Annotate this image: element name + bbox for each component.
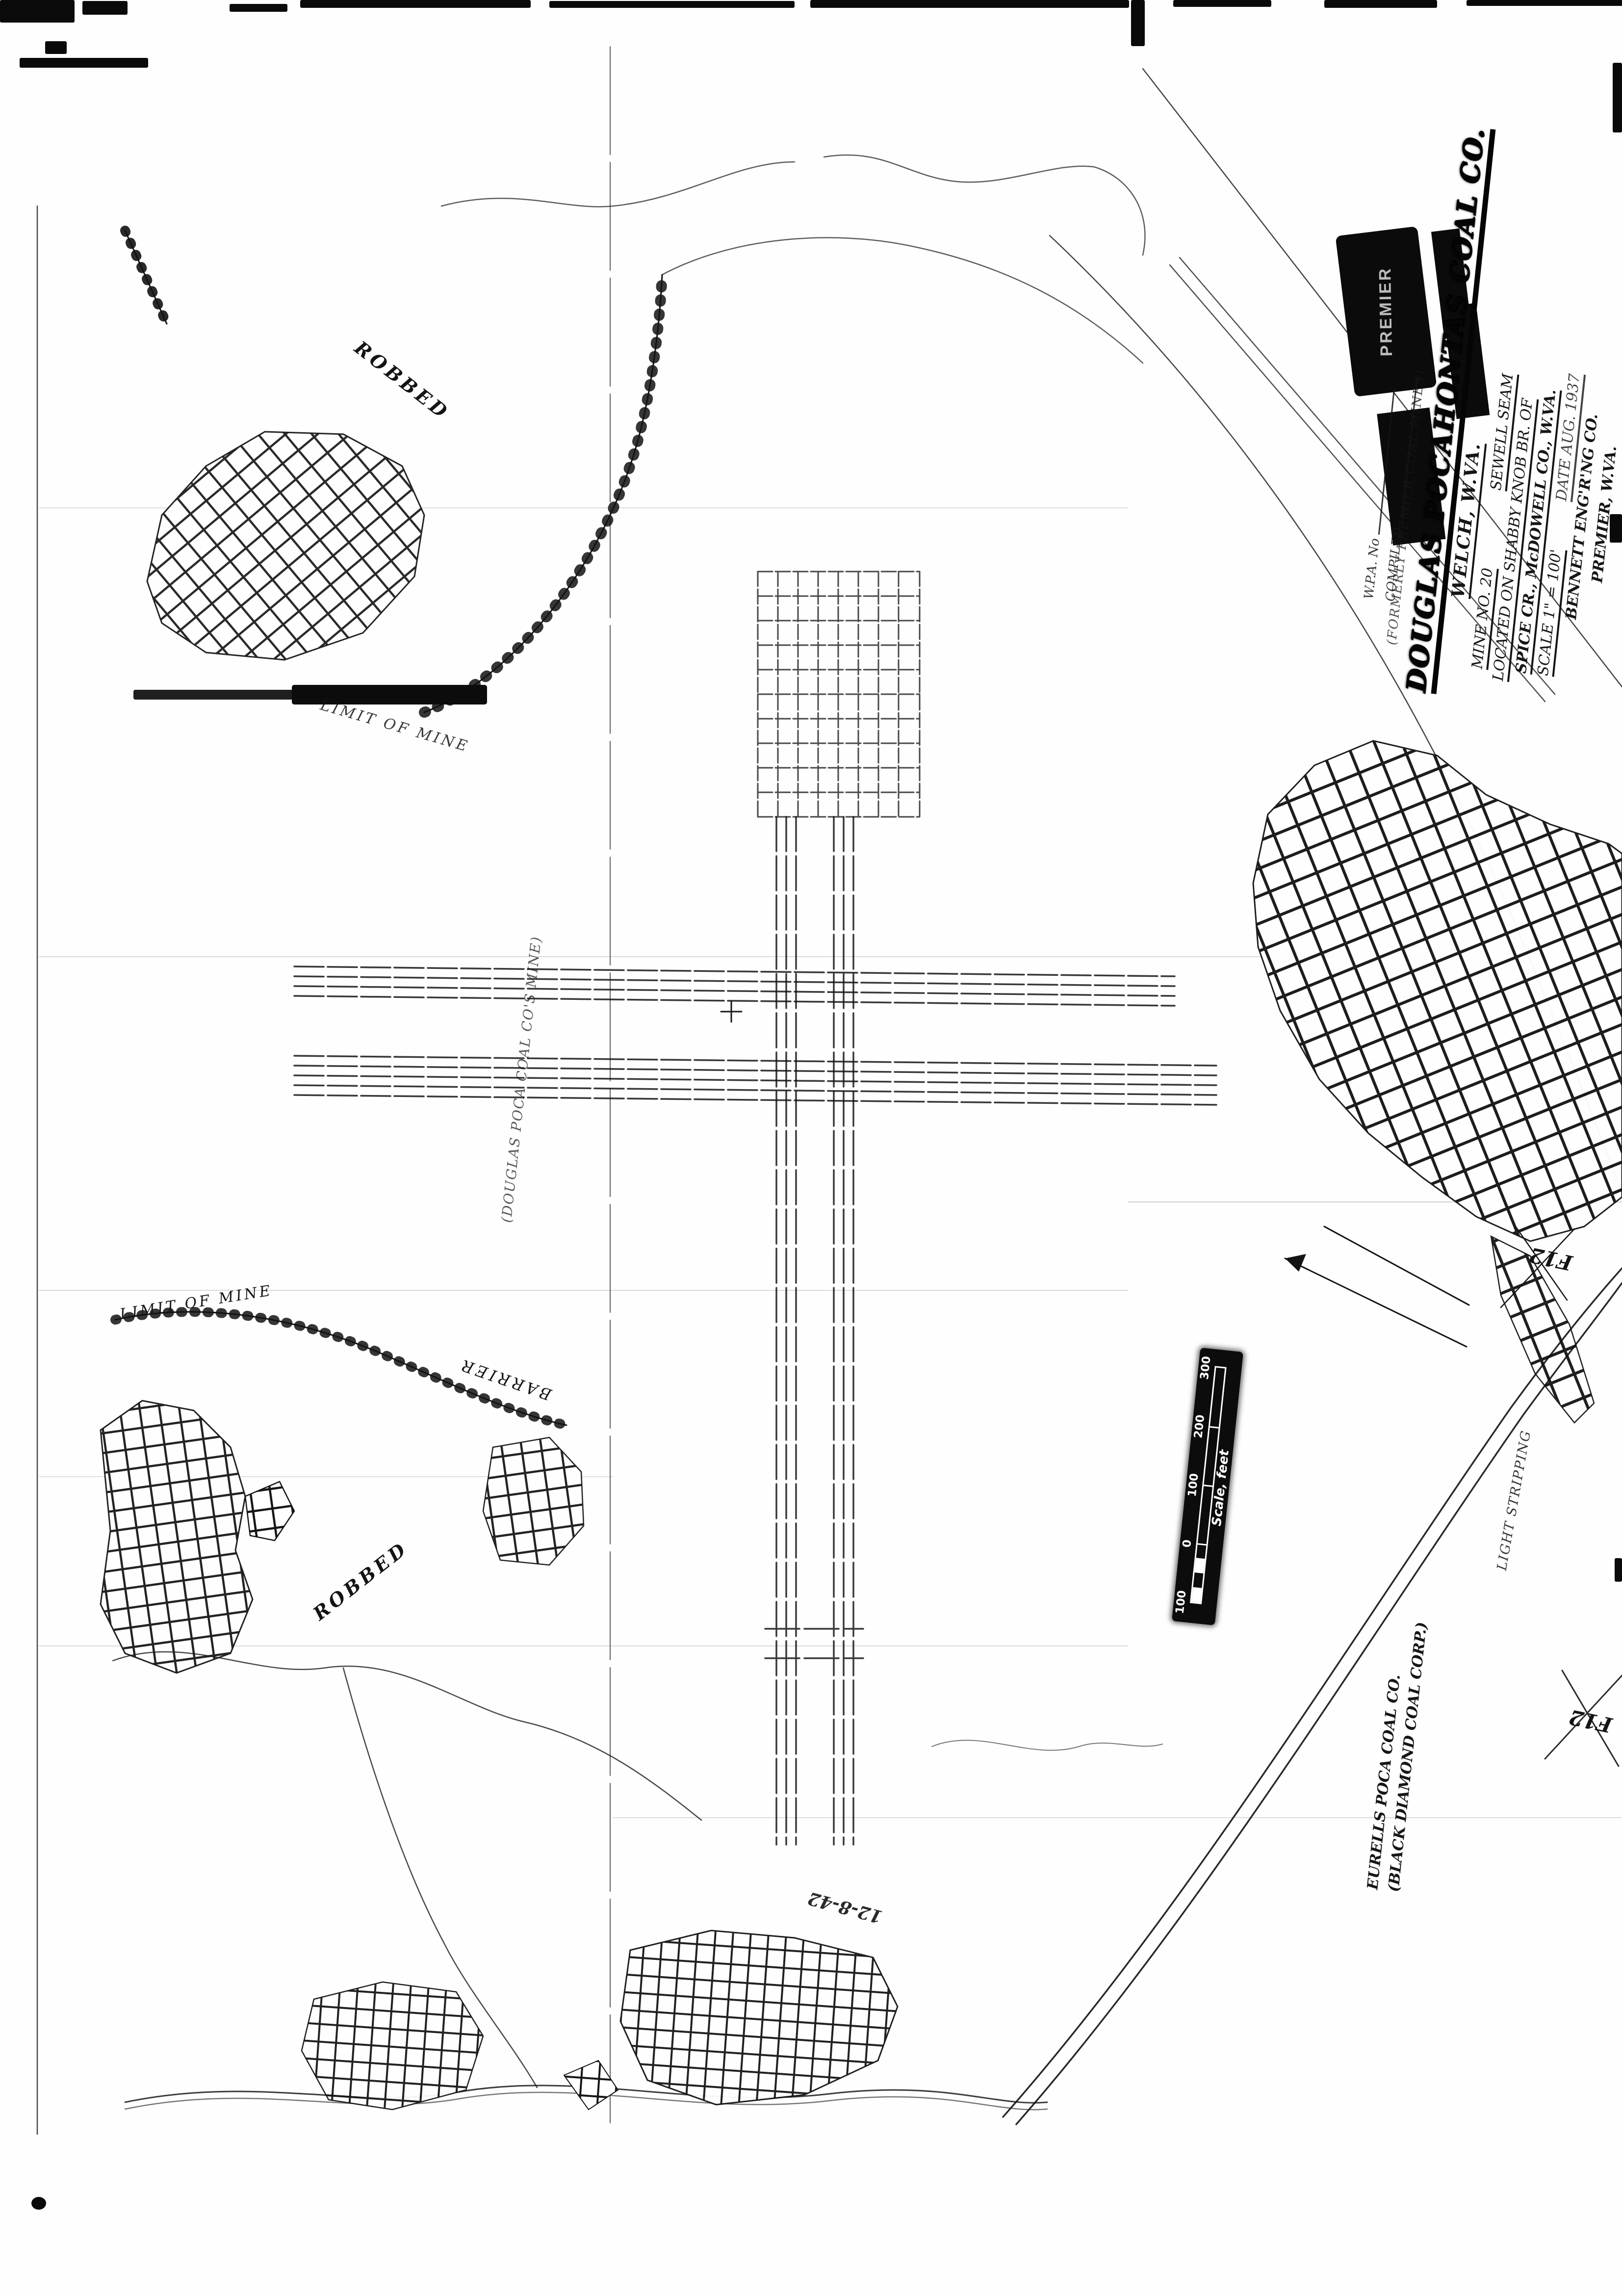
scan-artifact [1324, 0, 1437, 8]
scale-tick: 0 [1181, 1539, 1194, 1548]
railroad-double-line [1003, 1268, 1622, 2124]
central-room-grid [758, 572, 920, 817]
scale-tick: 100 [1174, 1590, 1189, 1614]
workings-right-cluster [1253, 741, 1622, 1423]
vertical-entries [765, 817, 863, 1845]
scan-artifact [549, 1, 795, 8]
premier-stamp-text: PREMIER [1376, 266, 1396, 357]
scan-artifact [0, 0, 75, 23]
barrier-band [133, 685, 487, 704]
scan-artifact [230, 4, 287, 12]
scan-artifact [82, 1, 128, 15]
scan-artifact [1615, 1558, 1622, 1582]
scan-artifact [20, 58, 148, 68]
scan-artifact [810, 0, 1129, 8]
scan-artifact [1613, 63, 1622, 132]
scale-tick: 100 [1186, 1473, 1201, 1497]
scan-artifact [1131, 0, 1145, 46]
scale-tick: 300 [1198, 1356, 1213, 1380]
workings-bottom [302, 1931, 898, 2110]
workings-upper-left [147, 432, 424, 660]
scan-artifact [1173, 0, 1271, 7]
workings-lower-left [101, 1401, 584, 1673]
mine-limit-boundaries [115, 231, 662, 1425]
scan-artifact [1467, 0, 1622, 6]
survey-cross [721, 1001, 742, 1022]
scan-artifact [31, 2197, 46, 2210]
horizontal-entries [294, 966, 1216, 1105]
scale-tick: 200 [1192, 1414, 1207, 1438]
scan-artifact [45, 41, 67, 54]
scanned-mine-map-sheet: PREMIER W.P.A. No COMPILED (FORMERLY PRE… [0, 0, 1622, 2296]
scan-artifact [300, 0, 531, 8]
